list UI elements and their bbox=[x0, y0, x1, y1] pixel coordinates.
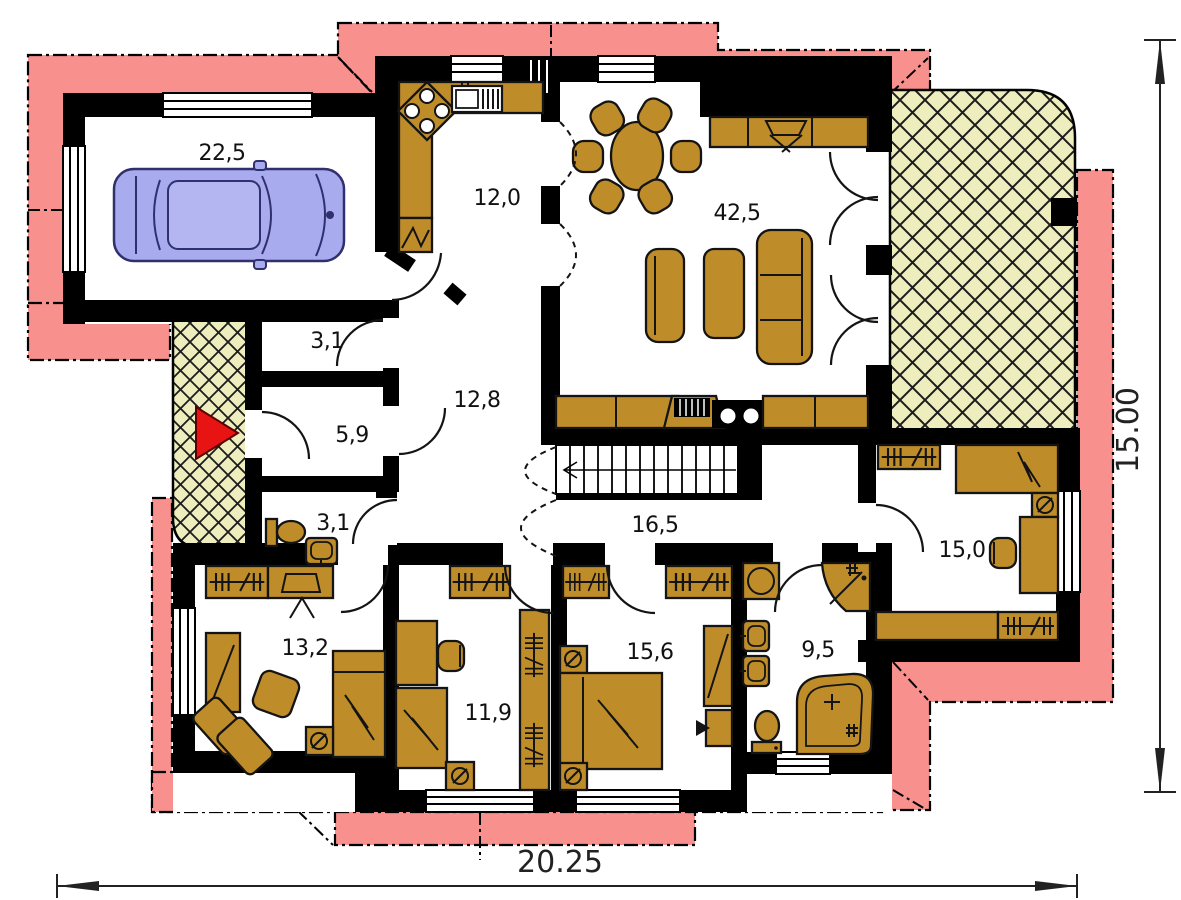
bathroom-window bbox=[776, 752, 830, 774]
bed bbox=[333, 651, 385, 757]
dimension-height-label: 15.00 bbox=[1111, 387, 1146, 473]
label-wc: 3,1 bbox=[316, 511, 350, 536]
floor-plan-canvas: 22,5 12,0 42,5 3,1 5,9 12,8 3,1 16,5 15,… bbox=[0, 0, 1181, 900]
sofa-large bbox=[757, 230, 812, 364]
dining-window bbox=[598, 56, 655, 82]
label-kitchen: 12,0 bbox=[474, 186, 521, 211]
double-bed bbox=[560, 673, 662, 769]
staircase bbox=[556, 445, 738, 500]
entrance-porch bbox=[173, 312, 250, 548]
sofa-small bbox=[646, 249, 684, 342]
label-corridor: 16,5 bbox=[632, 513, 679, 538]
label-bathroom: 9,5 bbox=[801, 638, 835, 663]
garage-window bbox=[163, 93, 312, 117]
label-hall: 12,8 bbox=[454, 388, 501, 413]
label-bedroom-master: 15,6 bbox=[627, 640, 674, 665]
label-living-dining: 42,5 bbox=[714, 201, 761, 226]
washbasin-icon bbox=[740, 656, 769, 686]
kitchen-sink-icon bbox=[452, 82, 502, 112]
kitchen-window bbox=[451, 56, 503, 82]
toilet-icon bbox=[752, 711, 781, 753]
terrace bbox=[890, 90, 1075, 430]
label-entry-hall: 5,9 bbox=[335, 423, 369, 448]
dressing-table bbox=[268, 566, 333, 598]
column-dot bbox=[721, 409, 736, 424]
label-garage: 22,5 bbox=[199, 141, 246, 166]
bedroom-small-window bbox=[426, 790, 534, 812]
desk-chair bbox=[438, 641, 464, 671]
column-dot bbox=[744, 409, 759, 424]
car bbox=[114, 161, 344, 269]
study-window bbox=[173, 608, 195, 715]
label-study: 13,2 bbox=[282, 636, 329, 661]
bed bbox=[956, 445, 1058, 493]
label-bedroom-small: 11,9 bbox=[465, 701, 512, 726]
corner-bathtub-icon bbox=[797, 674, 873, 754]
washing-machine-icon bbox=[743, 563, 779, 599]
desk bbox=[396, 621, 437, 685]
tv-icon bbox=[674, 398, 710, 417]
washbasin-icon bbox=[740, 621, 769, 651]
washbasin-icon bbox=[306, 538, 337, 566]
desk bbox=[1020, 517, 1058, 593]
label-bedroom-right: 15,0 bbox=[939, 538, 986, 563]
bed bbox=[396, 688, 447, 768]
dimension-right: 15.00 bbox=[1111, 40, 1176, 792]
dimension-bottom: 20.25 bbox=[57, 845, 1077, 898]
floor-plan-page: 22,5 12,0 42,5 3,1 5,9 12,8 3,1 16,5 15,… bbox=[0, 0, 1181, 900]
garage-door bbox=[63, 146, 85, 272]
toilet-icon bbox=[277, 521, 305, 543]
bedroom-right-window bbox=[1056, 491, 1080, 592]
bedroom-master-window bbox=[576, 790, 680, 812]
desk-chair bbox=[990, 538, 1016, 568]
coffee-table bbox=[704, 249, 744, 338]
label-pantry: 3,1 bbox=[310, 329, 344, 354]
dimension-width-label: 20.25 bbox=[517, 845, 603, 880]
